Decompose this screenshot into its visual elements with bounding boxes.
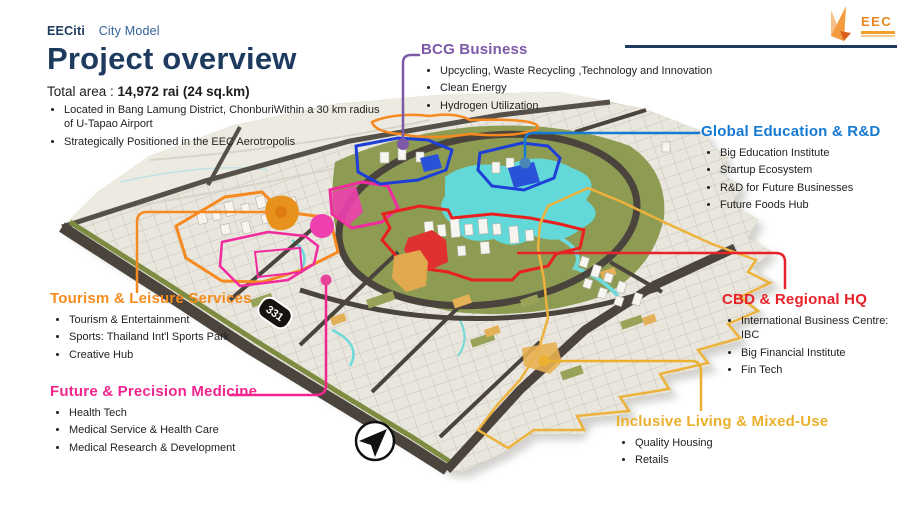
bullet-item: Creative Hub: [69, 348, 280, 362]
bullet-item: Future Foods Hub: [720, 198, 897, 212]
header-block: EECiti City Model Project overview Total…: [47, 24, 387, 152]
bullet-item: Health Tech: [69, 406, 290, 420]
leader-dot-education: [520, 158, 531, 169]
bullet-item: Hydrogen Utilization: [440, 99, 721, 113]
bullet-item: Fin Tech: [741, 363, 900, 377]
header-bullets: Located in Bang Lamung District, Chonbur…: [47, 103, 382, 149]
bullet-item: Big Financial Institute: [741, 346, 900, 360]
callout-cbd-title: CBD & Regional HQ: [722, 291, 900, 308]
leader-dot-medicine: [321, 275, 332, 286]
bullet-item: Medical Research & Development: [69, 441, 290, 455]
eec-logo-tagline-bar: [861, 31, 895, 34]
callout-bcg-items: Upcycling, Waste Recycling ,Technology a…: [421, 64, 721, 113]
bullet-item: International Business Centre: IBC: [741, 314, 900, 343]
bullet-item: Sports: Thailand Int'l Sports Park: [69, 330, 280, 344]
leader-dot-living: [539, 356, 550, 367]
bullet-item: R&D for Future Businesses: [720, 181, 897, 195]
callout-education: Global Education & R&D Big Education Ins…: [701, 123, 897, 215]
callout-education-items: Big Education InstituteStartup Ecosystem…: [701, 146, 897, 212]
total-area: Total area : 14,972 rai (24 sq.km): [47, 84, 387, 99]
leader-dot-tourism: [275, 206, 287, 218]
bullet-item: Strategically Positioned in the EEC Aero…: [64, 135, 382, 149]
callout-medicine: Future & Precision Medicine Health TechM…: [50, 383, 290, 458]
callout-medicine-items: Health TechMedical Service & Health Care…: [50, 406, 290, 455]
callout-bcg-title: BCG Business: [421, 41, 721, 58]
callout-cbd: CBD & Regional HQ International Business…: [722, 291, 900, 380]
eec-logo-tagline-bar2: [861, 35, 895, 37]
callout-education-title: Global Education & R&D: [701, 123, 897, 140]
compass-icon: [356, 422, 394, 460]
breadcrumb: EECiti City Model: [47, 24, 387, 38]
bullet-item: Located in Bang Lamung District, Chonbur…: [64, 103, 382, 132]
callout-cbd-items: International Business Centre: IBCBig Fi…: [722, 314, 900, 377]
callout-living-items: Quality HousingRetails: [616, 436, 866, 468]
bullet-item: Upcycling, Waste Recycling ,Technology a…: [440, 64, 721, 78]
brand-name: EECiti: [47, 24, 85, 38]
bullet-item: Startup Ecosystem: [720, 163, 897, 177]
page-title: Project overview: [47, 41, 387, 77]
eec-logo: EEC: [828, 6, 896, 44]
eec-logo-text: EEC: [861, 14, 895, 37]
eec-logo-word: EEC: [861, 14, 895, 29]
total-area-value: 14,972 rai (24 sq.km): [118, 84, 250, 99]
bullet-item: Big Education Institute: [720, 146, 897, 160]
callout-living: Inclusive Living & Mixed-Use Quality Hou…: [616, 413, 866, 471]
medicine-cluster-2: [310, 214, 334, 238]
total-area-label: Total area :: [47, 84, 118, 99]
callout-tourism: Tourism & Leisure Services Tourism & Ent…: [50, 290, 280, 365]
slide: 331 EECiti City Model Project overview T…: [0, 0, 900, 506]
callout-tourism-title: Tourism & Leisure Services: [50, 290, 280, 307]
bullet-item: Quality Housing: [635, 436, 866, 450]
callout-living-title: Inclusive Living & Mixed-Use: [616, 413, 866, 430]
bullet-item: Medical Service & Health Care: [69, 423, 290, 437]
leader-dot-bcg: [397, 138, 409, 150]
bullet-item: Tourism & Entertainment: [69, 313, 280, 327]
bullet-item: Retails: [635, 453, 866, 467]
bullet-item: Clean Energy: [440, 81, 721, 95]
breadcrumb-item: City Model: [99, 24, 160, 38]
callout-bcg: BCG Business Upcycling, Waste Recycling …: [421, 41, 721, 116]
callout-medicine-title: Future & Precision Medicine: [50, 383, 290, 400]
callout-tourism-items: Tourism & EntertainmentSports: Thailand …: [50, 313, 280, 362]
eec-logo-icon: [828, 6, 856, 44]
